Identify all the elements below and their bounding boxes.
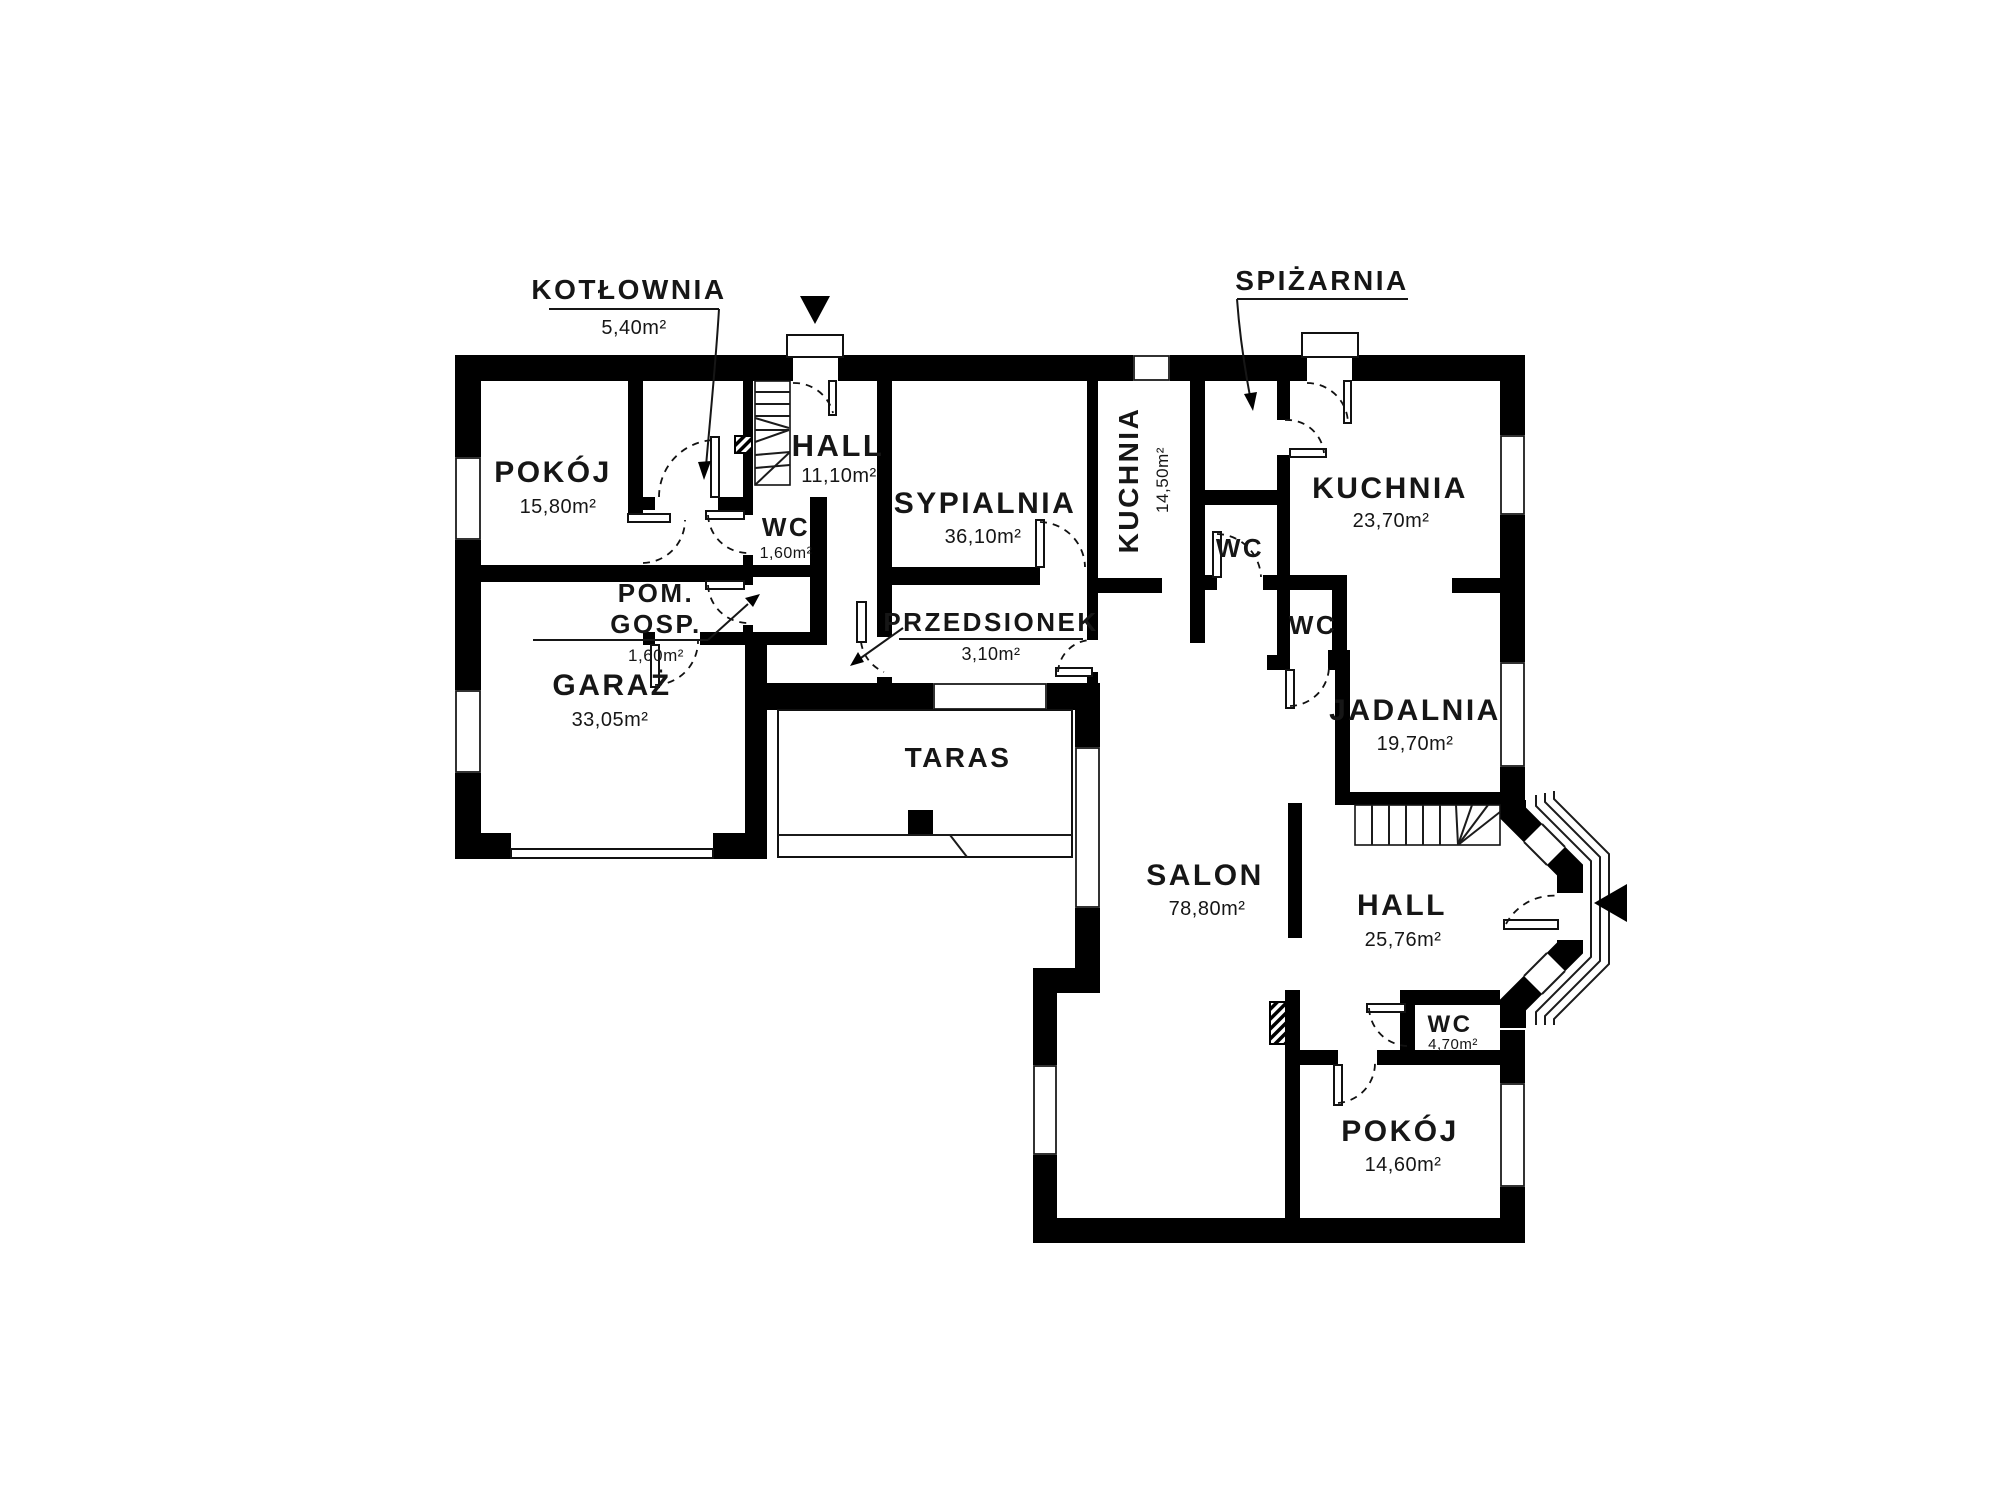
chimney-icon bbox=[1270, 1002, 1286, 1044]
terrace bbox=[778, 710, 1072, 857]
garage-door bbox=[511, 849, 713, 858]
door-leaf bbox=[1504, 920, 1558, 929]
door-swing-arc bbox=[861, 642, 884, 672]
room-label-taras: TARAS bbox=[905, 742, 1012, 773]
door-leaf bbox=[1334, 1065, 1342, 1105]
window-przedsionek-taras bbox=[934, 684, 1046, 709]
door-swing-arc bbox=[708, 585, 748, 623]
room-label-kuchnia-mala: KUCHNIA bbox=[1113, 407, 1144, 554]
room-label-wc-srodek: WC bbox=[1289, 610, 1337, 640]
door-leaf bbox=[1286, 670, 1294, 708]
bay-door-opening bbox=[1555, 893, 1585, 940]
door-leaf bbox=[706, 581, 744, 589]
bay-entrance bbox=[1504, 791, 1627, 1028]
side-entrance bbox=[1302, 333, 1358, 423]
door-leaf bbox=[829, 381, 836, 415]
room-area-kotlownia: 5,40m² bbox=[601, 317, 666, 339]
staircase-hall-gora bbox=[755, 381, 790, 485]
window-kuchnia-duza bbox=[1501, 436, 1524, 514]
room-area-jadalnia: 19,70m² bbox=[1377, 733, 1454, 755]
room-label-wc-dol: WC bbox=[1428, 1011, 1473, 1038]
room-label-pokoj-gora: POKÓJ bbox=[494, 455, 612, 489]
kotlownia-arrow-icon bbox=[698, 461, 711, 480]
entrance-porch bbox=[1302, 333, 1358, 357]
spizarnia-leader bbox=[1237, 299, 1250, 396]
room-label-pom-gosp-1: POM. bbox=[618, 578, 694, 608]
door-leaf bbox=[1367, 1004, 1405, 1012]
door-swing-arc bbox=[1338, 1063, 1375, 1103]
door-leaf bbox=[857, 602, 866, 642]
door-leaf bbox=[1290, 449, 1326, 457]
door-swing-arc bbox=[1040, 522, 1085, 567]
room-label-hall-gora: HALL bbox=[792, 428, 885, 463]
room-area-pokoj-gora: 15,80m² bbox=[520, 496, 597, 518]
entrance-arrow-icon bbox=[800, 296, 830, 324]
room-label-sypialnia: SYPIALNIA bbox=[894, 487, 1077, 520]
room-label-jadalnia: JADALNIA bbox=[1329, 694, 1501, 727]
door-swing-arc bbox=[1290, 665, 1329, 706]
door-swing-arc bbox=[708, 515, 748, 553]
window-jadalnia bbox=[1501, 663, 1524, 766]
room-label-pokoj-dol: POKÓJ bbox=[1341, 1114, 1459, 1148]
door-leaf bbox=[628, 514, 670, 522]
door-leaf bbox=[1056, 668, 1092, 676]
room-area-salon: 78,80m² bbox=[1169, 898, 1246, 920]
staircase-hall-dol bbox=[1355, 805, 1500, 845]
room-area-wc-hall: 1,60m² bbox=[760, 545, 813, 562]
door-leaf bbox=[706, 511, 744, 519]
window-pokoj-gora bbox=[456, 458, 480, 539]
bay-window-slot-top bbox=[1533, 833, 1556, 856]
door-leaf bbox=[1036, 520, 1044, 567]
main-entrance bbox=[787, 296, 843, 415]
room-area-pom-gosp: 1,60m² bbox=[628, 646, 684, 665]
room-label-pom-gosp-2: GOSP. bbox=[610, 609, 702, 639]
room-area-garaz: 33,05m² bbox=[572, 709, 649, 731]
window-salon-dol bbox=[1034, 1066, 1056, 1154]
room-label-wc-kuchnia: WC bbox=[1216, 533, 1264, 563]
entrance-arrow-icon bbox=[1594, 884, 1627, 922]
window-salon-taras bbox=[1076, 748, 1099, 907]
entrance-porch bbox=[787, 335, 843, 357]
floor-plan-page: KOTŁOWNIA 5,40m² POKÓJ 15,80m² HALL 11,1… bbox=[0, 0, 2000, 1500]
room-area-hall-dol: 25,76m² bbox=[1365, 929, 1442, 951]
door-swing-arc bbox=[643, 520, 685, 563]
room-area-hall-gora: 11,10m² bbox=[801, 465, 876, 487]
door-swing-arc bbox=[1307, 383, 1348, 423]
room-label-przedsionek: PRZEDSIONEK bbox=[883, 607, 1098, 637]
room-area-przedsionek: 3,10m² bbox=[961, 644, 1020, 664]
window-garaz bbox=[456, 691, 480, 772]
window-kuchnia-mala bbox=[1134, 356, 1169, 380]
room-label-garaz: GARAŻ bbox=[552, 669, 671, 702]
przedsionek-entry-arrow-icon bbox=[850, 652, 864, 666]
room-label-kotlownia: KOTŁOWNIA bbox=[531, 274, 726, 305]
room-area-kuchnia-mala: 14,50m² bbox=[1153, 447, 1172, 513]
spizarnia-arrow-icon bbox=[1244, 392, 1257, 411]
window-pokoj-dol bbox=[1501, 1084, 1524, 1186]
bay-window-slot-bottom bbox=[1533, 962, 1556, 985]
room-label-kuchnia-duza: KUCHNIA bbox=[1312, 472, 1468, 505]
room-area-kuchnia-duza: 23,70m² bbox=[1353, 510, 1430, 532]
room-label-spizarnia: SPIŻARNIA bbox=[1235, 265, 1408, 296]
room-label-salon: SALON bbox=[1146, 859, 1264, 892]
room-area-pokoj-dol: 14,60m² bbox=[1365, 1154, 1442, 1176]
floor-plan-drawing: KOTŁOWNIA 5,40m² POKÓJ 15,80m² HALL 11,1… bbox=[0, 0, 2000, 1500]
door-swing-arc bbox=[793, 383, 833, 413]
room-label-hall-dol: HALL bbox=[1357, 889, 1447, 922]
room-label-wc-hall: WC bbox=[762, 512, 810, 542]
room-area-sypialnia: 36,10m² bbox=[945, 526, 1022, 548]
room-area-wc-dol: 4,70m² bbox=[1428, 1036, 1478, 1053]
chimney-icon bbox=[735, 436, 752, 453]
door-leaf bbox=[711, 437, 719, 497]
